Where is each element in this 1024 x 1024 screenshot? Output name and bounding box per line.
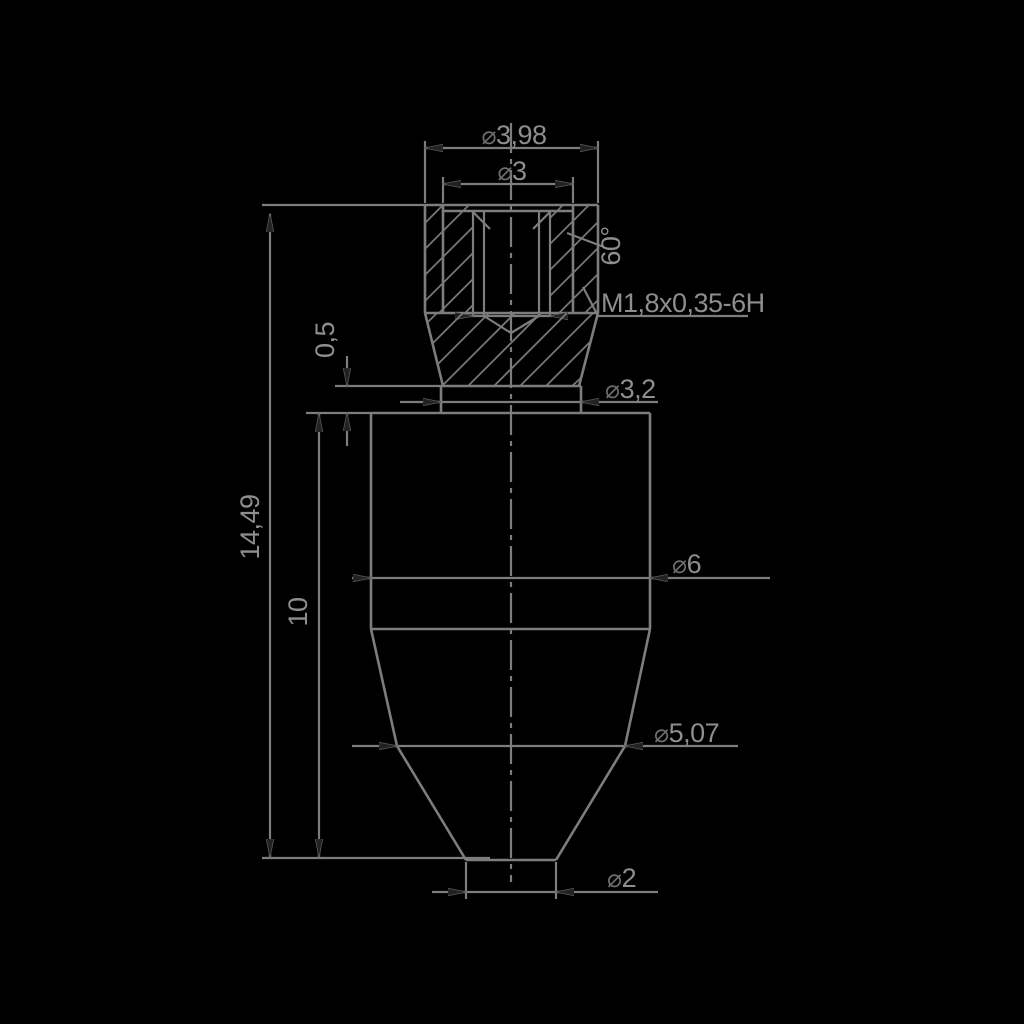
dim-top-diameter-label: ⌀3,98 — [481, 120, 546, 150]
dim-inner-diameter-label: ⌀3 — [497, 156, 526, 186]
technical-drawing-canvas: ⌀3,98 ⌀3 60° M1,8x0,35-6H 0,5 ⌀3,2 — [0, 0, 1024, 1024]
dim-body-length-label: 10 — [283, 597, 313, 626]
dim-shoulder-diameter-label: ⌀5,07 — [654, 718, 719, 748]
dim-tip-diameter-label: ⌀2 — [607, 863, 636, 893]
callout-thread-spec: M1,8x0,35-6H — [583, 287, 765, 318]
dim-step-height-label: 0,5 — [310, 322, 340, 358]
dim-collar-diameter-label: ⌀3,2 — [605, 374, 656, 404]
dim-chamfer-angle-label: 60° — [596, 226, 626, 265]
dim-body-diameter-label: ⌀6 — [672, 549, 701, 579]
dim-overall-length-label: 14,49 — [235, 494, 265, 559]
dim-thread-spec-label: M1,8x0,35-6H — [601, 288, 765, 318]
